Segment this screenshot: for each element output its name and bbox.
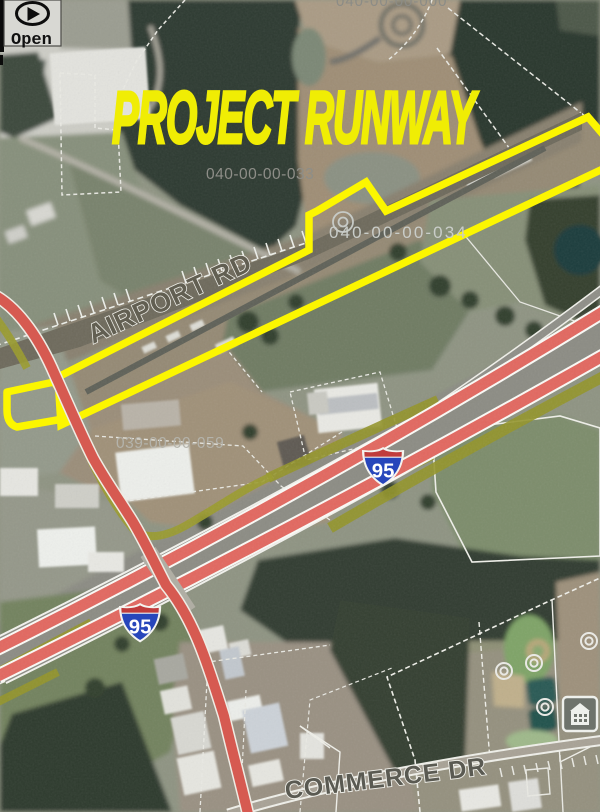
- svg-text:040-00-00-034: 040-00-00-034: [329, 223, 468, 242]
- svg-text:040-00-00-033: 040-00-00-033: [206, 166, 314, 183]
- svg-text:95: 95: [372, 461, 395, 483]
- svg-text:PROJECT RUNWAY: PROJECT RUNWAY: [112, 76, 479, 159]
- svg-text:040-00-00-000: 040-00-00-000: [336, 0, 447, 10]
- svg-text:Open: Open: [11, 31, 52, 50]
- svg-text:039-00-00-059: 039-00-00-059: [116, 435, 224, 452]
- svg-text:95: 95: [129, 617, 152, 639]
